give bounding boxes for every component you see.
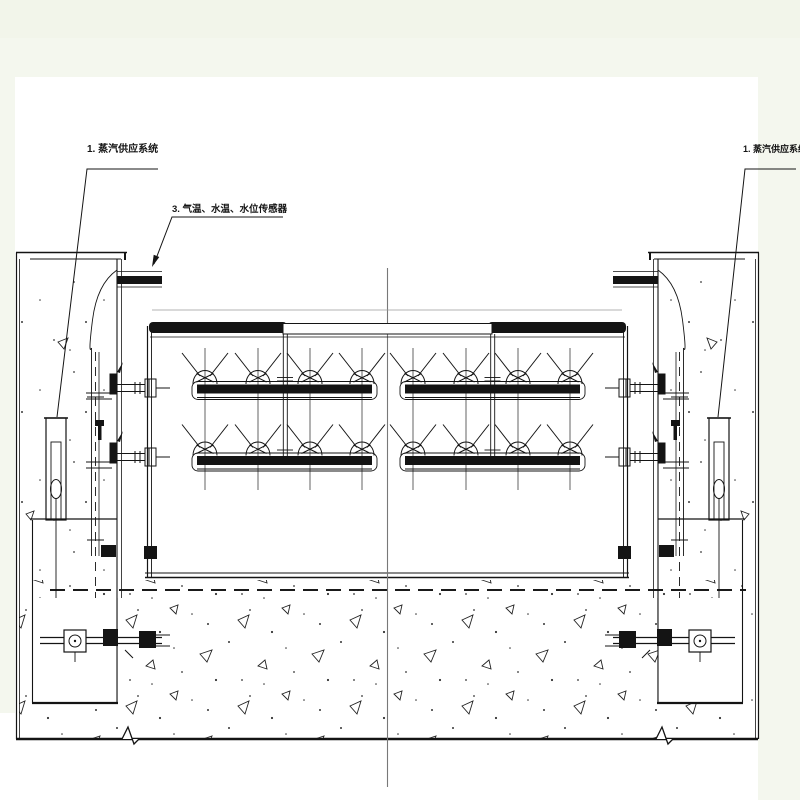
drawing-sheet: 1. 蒸汽供应系统 3. 气温、水温、水位传感器 1. 蒸汽供应系统 xyxy=(0,0,800,800)
steam-pipe-upper-right xyxy=(390,353,593,400)
label-steam-supply-right: 1. 蒸汽供应系统 xyxy=(743,143,800,154)
label-sensors: 3. 气温、水温、水位传感器 xyxy=(172,203,288,215)
label-steam-supply-left: 1. 蒸汽供应系统 xyxy=(87,142,158,155)
arrowhead xyxy=(152,255,159,267)
steam-feed-drops xyxy=(277,334,501,458)
steam-pipe-lower-right xyxy=(390,425,593,472)
engineering-drawing: 1. 蒸汽供应系统 3. 气温、水温、水位传感器 1. 蒸汽供应系统 xyxy=(0,0,800,800)
